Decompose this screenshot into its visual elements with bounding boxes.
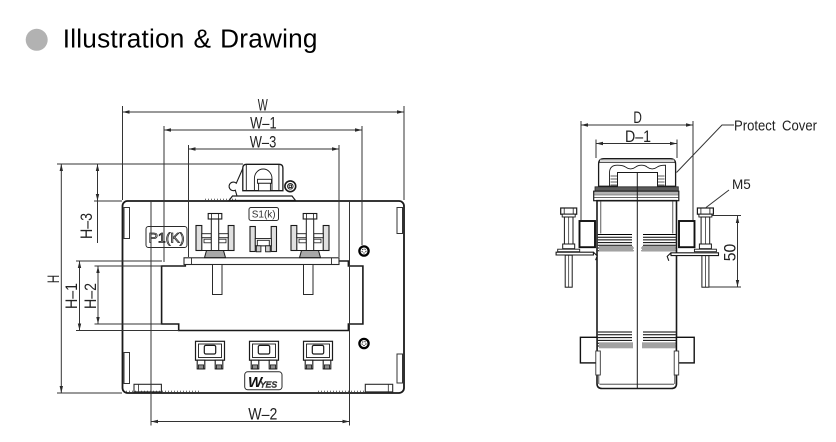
svg-text:W–3: W–3 (250, 134, 277, 152)
svg-text:D: D (633, 109, 642, 127)
svg-text:50: 50 (722, 244, 740, 262)
svg-text:H: H (45, 275, 63, 284)
svg-text:D–1: D–1 (625, 128, 651, 146)
svg-text:H–2: H–2 (82, 283, 100, 309)
svg-text:S1(k): S1(k) (252, 209, 276, 220)
svg-text:YES: YES (260, 380, 277, 390)
svg-text:H–3: H–3 (78, 213, 96, 239)
svg-text:Illustration & Drawing: Illustration & Drawing (63, 23, 318, 53)
svg-text:Protect Cover: Protect Cover (734, 119, 817, 135)
svg-text:P1(K): P1(K) (149, 230, 185, 246)
svg-text:W: W (258, 97, 268, 115)
svg-text:W–2: W–2 (248, 405, 277, 423)
svg-text:M5: M5 (732, 177, 751, 192)
svg-text:H–1: H–1 (63, 283, 81, 309)
svg-text:W–1: W–1 (250, 115, 277, 133)
